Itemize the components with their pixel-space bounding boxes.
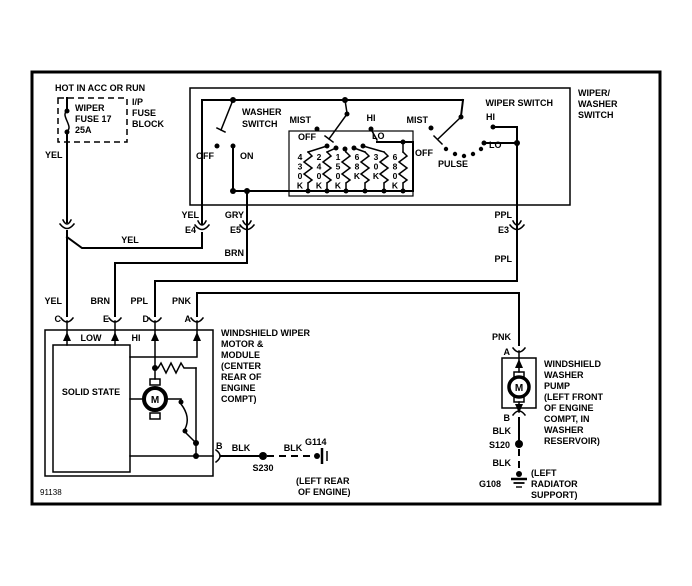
pump-motor-icon: M [509, 372, 529, 402]
park-switch-icon [181, 404, 187, 429]
terminal-b-icon [216, 450, 220, 462]
right-off-label: OFF [415, 148, 433, 158]
resistor-icon [304, 152, 312, 191]
switch-outside-label-1: WIPER/ [578, 88, 611, 98]
pump-terminal-b-label: B [504, 413, 511, 423]
washer-switch-label-1: WASHER [242, 107, 282, 117]
fuse-number: FUSE 17 [75, 114, 112, 124]
ground-g114-label: G114 [305, 437, 327, 447]
fuse-icon [65, 109, 70, 135]
terminal-c-label: C [55, 314, 62, 324]
pulse-contact [479, 147, 483, 151]
connector-e3-label: E3 [498, 225, 509, 235]
ground-g114-loc-1: (LEFT REAR [296, 476, 350, 486]
motor-right-line [166, 399, 181, 401]
motor-m-label: M [151, 395, 159, 406]
ground-g114-loc-2: OF ENGINE) [298, 487, 351, 497]
splice-s120-dot [515, 440, 523, 448]
pump-name-line: RESERVOIR) [544, 436, 600, 446]
left-lo-label: LO [372, 131, 385, 141]
pulse-contact [462, 154, 466, 158]
wire-label-blk-4: BLK [493, 458, 512, 468]
resistor-value: 430K [297, 152, 304, 191]
washer-switch-label-2: SWITCH [242, 119, 278, 129]
module-name-line: REAR OF [221, 372, 262, 382]
module-hi-label: HI [132, 333, 141, 343]
pulse-contact [471, 152, 475, 156]
arrow-up-icon [515, 359, 523, 368]
wire-label-yel-branch: YEL [121, 235, 139, 245]
module-low-label: LOW [81, 333, 102, 343]
selector-arm [438, 117, 461, 139]
left-hi-label: HI [367, 113, 376, 123]
module-box [45, 330, 213, 476]
module-name-line: WINDSHIELD WIPER [221, 328, 310, 338]
wire-label-brn-e: BRN [91, 296, 111, 306]
wiper-motor-icon: M [144, 379, 166, 419]
module-resistor-icon [155, 363, 196, 373]
resistor-value: 240K [316, 152, 323, 191]
module-name-line: ENGINE [221, 383, 256, 393]
selector-stub [461, 100, 463, 116]
wire-label-pnk-a: PNK [172, 296, 192, 306]
switch-outside-label-2: WASHER [578, 99, 618, 109]
pump-name-line: (LEFT FRONT [544, 392, 603, 402]
rail-dot [401, 189, 406, 194]
fuse-block-label-3: BLOCK [132, 119, 164, 129]
junction-dot [193, 453, 199, 459]
splice-s120-label: S120 [489, 440, 510, 450]
wire-label-ppl-above: PPL [494, 210, 512, 220]
wire-label-yel-e4: YEL [181, 210, 199, 220]
selector-arm [329, 114, 347, 139]
fuse-block-label-1: I/P [132, 97, 143, 107]
right-mist-contact [429, 126, 434, 131]
left-off-label: OFF [298, 132, 316, 142]
pump-name-line: WASHER [544, 425, 584, 435]
switch-outside-label-3: SWITCH [578, 110, 614, 120]
module-name-line: MODULE [221, 350, 260, 360]
right-lo-contact [482, 141, 487, 146]
right-pulse-label: PULSE [438, 159, 468, 169]
terminal-d-label: D [143, 314, 150, 324]
wiring-diagram: HOT IN ACC OR RUN WIPER FUSE 17 25A I/P … [0, 0, 692, 581]
ground-g108-loc-1: (LEFT [531, 468, 557, 478]
solid-state-box [53, 345, 130, 472]
pump-m-label: M [515, 383, 523, 394]
ground-g114-icon [314, 448, 327, 464]
pulse-contact [444, 147, 448, 151]
rail-dot [306, 189, 311, 194]
wire-label-ppl-below: PPL [494, 254, 512, 264]
wiring-diagram-page: HOT IN ACC OR RUN WIPER FUSE 17 25A I/P … [0, 0, 692, 581]
resistor-value: 680K [392, 152, 399, 191]
arrow-up-icon [151, 332, 159, 341]
washer-off-contact [215, 144, 220, 149]
terminal-a-label: A [185, 314, 192, 324]
wire-label-brn-e5: BRN [225, 248, 245, 258]
delay-resistor-board: 430K 240K 150K 68K 30K 680K [230, 131, 413, 196]
selector-arm-tip [325, 136, 333, 142]
wire-label-blk-2: BLK [284, 443, 303, 453]
pump-name-line: OF ENGINE [544, 403, 594, 413]
pump-name-line: PUMP [544, 381, 570, 391]
resistor-value: 68K [354, 152, 361, 181]
pulse-contact [453, 152, 457, 156]
junction-dot [193, 440, 199, 446]
module-name-line: COMPT) [221, 394, 257, 404]
wiper-motor-module: C E D A LOW HI SOLID STATE M [45, 314, 351, 497]
wire-label-blk-3: BLK [493, 426, 512, 436]
left-mist-label: MIST [290, 115, 312, 125]
pump-name-line: WASHER [544, 370, 584, 380]
pump-name-line: COMPT, IN [544, 414, 590, 424]
wire-label-blk-1: BLK [232, 443, 251, 453]
rail-dot [344, 189, 349, 194]
rail-dot [363, 189, 368, 194]
washer-switch: WASHER SWITCH OFF ON [196, 100, 282, 191]
resistor-icon [342, 152, 350, 191]
resistor-icon [361, 152, 369, 191]
wire-label-yel-fuse: YEL [45, 150, 63, 160]
washer-on-label: ON [240, 151, 254, 161]
fuse-rating: 25A [75, 125, 92, 135]
terminal-e-label: E [103, 314, 109, 324]
diagram-id: 91138 [40, 488, 62, 497]
module-name-line: MOTOR & [221, 339, 264, 349]
wiper-delay-selector: MIST OFF HI LO [290, 100, 385, 152]
right-lo-label: LO [489, 140, 502, 150]
ground-g108-loc-2: RADIATOR [531, 479, 578, 489]
rail-dot [382, 189, 387, 194]
junction-dot [230, 188, 236, 194]
hot-label: HOT IN ACC OR RUN [55, 83, 145, 93]
splice-s230-label: S230 [252, 463, 273, 473]
right-mist-label: MIST [407, 115, 429, 125]
connector-e5-label: E5 [230, 225, 241, 235]
splice-s230-dot [259, 452, 267, 460]
terminal-b-label: B [216, 441, 223, 451]
fuse-name: WIPER [75, 103, 105, 113]
resistor-icon [399, 152, 407, 191]
right-hi-label: HI [486, 112, 495, 122]
ground-g108-icon [511, 471, 527, 487]
washer-off-label: OFF [196, 151, 214, 161]
arrow-up-icon [193, 332, 201, 341]
pump-name-line: WINDSHIELD [544, 359, 601, 369]
wiper-switch-title: WIPER SWITCH [486, 98, 554, 108]
washer-pump: A M B WINDSHIELD WASHER PUMP (LEFT FRONT… [479, 347, 603, 500]
module-name-line: (CENTER [221, 361, 261, 371]
resistor-icon [380, 152, 388, 191]
resistor-value: 150K [335, 152, 342, 191]
pump-terminal-a-label: A [504, 347, 511, 357]
wire-label-ppl-d: PPL [130, 296, 148, 306]
ground-g108-label: G108 [479, 479, 501, 489]
resistor-icon [323, 152, 331, 191]
ground-g108-loc-3: SUPPORT) [531, 490, 578, 500]
rail-dot [325, 189, 330, 194]
wire-label-pnk-pump: PNK [492, 332, 512, 342]
wire-label-gry-e5: GRY [225, 210, 244, 220]
fuse-block-label-2: FUSE [132, 108, 156, 118]
wiper-washer-switch: WIPER SWITCH WIPER/ WASHER SWITCH WASHER… [190, 88, 618, 224]
solid-state-label: SOLID STATE [62, 387, 120, 397]
washer-switch-arm [221, 100, 233, 130]
arrow-up-icon [111, 332, 119, 341]
connector-e4-label: E4 [185, 225, 196, 235]
junction-dot [401, 140, 406, 145]
wiper-mode-selector: MIST OFF PULSE LO HI [407, 100, 521, 169]
resistor-value: 30K [373, 152, 380, 181]
arrow-up-icon [63, 332, 71, 341]
wire-label-yel-c: YEL [44, 296, 62, 306]
